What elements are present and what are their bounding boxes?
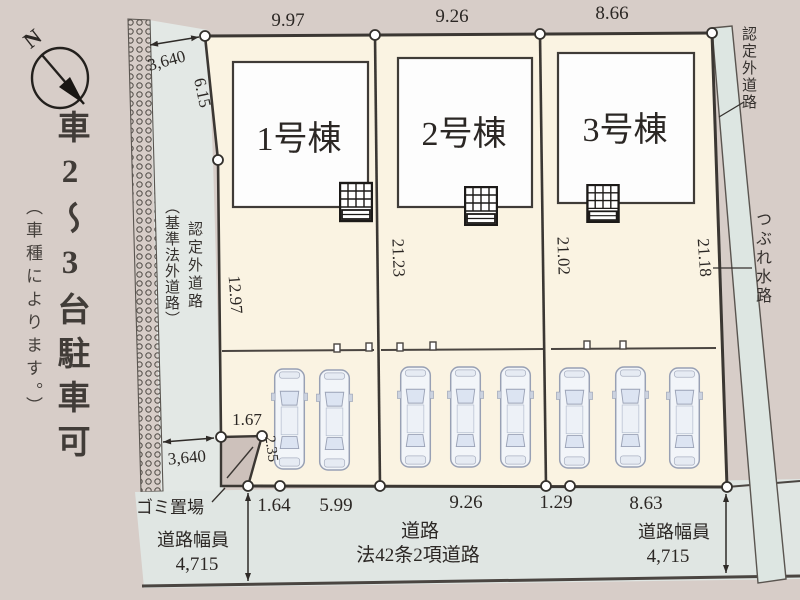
storage-grid-1 (340, 183, 372, 221)
dim-top-1: 9.97 (271, 10, 304, 31)
side-note-sub: （車種によります。） (24, 198, 41, 420)
side-note-main: 車2〜3台駐車可 (53, 110, 86, 468)
dim-bottom-4: 1.29 (539, 492, 572, 513)
dim-bottom-3: 9.26 (449, 492, 482, 513)
dim-bottom-2: 5.99 (319, 495, 352, 516)
building-3-label: 3号棟 (583, 111, 668, 149)
dim-top-3: 8.66 (595, 3, 628, 24)
road-width-left-value: 4,715 (176, 554, 219, 575)
right-road-label: 認定外道路 (740, 26, 755, 111)
dim-notch-w: 1.67 (232, 410, 262, 429)
road-width-right-value: 4,715 (647, 546, 690, 567)
dim-bottom-1: 1.64 (257, 495, 291, 516)
dim-left-lower: 12.97 (225, 275, 247, 315)
road-width-right-label: 道路幅員 (638, 522, 710, 542)
road-width-left-label: 道路幅員 (157, 530, 229, 550)
dim-depth-1: 21.23 (388, 238, 408, 277)
garbage-label: ゴミ置場 (136, 497, 204, 517)
storage-grid-2 (465, 187, 497, 225)
building-2-label: 2号棟 (422, 115, 507, 153)
dim-depth-3: 21.18 (694, 238, 716, 277)
road-name-label: 道路 (401, 520, 439, 542)
dim-top-2: 9.26 (435, 6, 468, 27)
storage-grid-3 (587, 185, 618, 222)
left-road-label: 認定外道路 (186, 221, 201, 311)
left-road-sublabel: （基準法外道路） (163, 199, 178, 327)
building-1-label: 1号棟 (257, 120, 342, 158)
dim-bottom-5: 8.63 (629, 493, 662, 514)
waterway-label: つぶれ水路 (753, 211, 769, 306)
site-plan-page: 1号棟 2号棟 3号棟 (0, 0, 800, 600)
dim-depth-2: 21.02 (553, 236, 573, 275)
site-plan-drawing: 1号棟 2号棟 3号棟 (0, 0, 800, 600)
dim-offset-bottom: 3,640 (167, 446, 207, 468)
road-type-label: 法42条2項道路 (356, 544, 480, 566)
